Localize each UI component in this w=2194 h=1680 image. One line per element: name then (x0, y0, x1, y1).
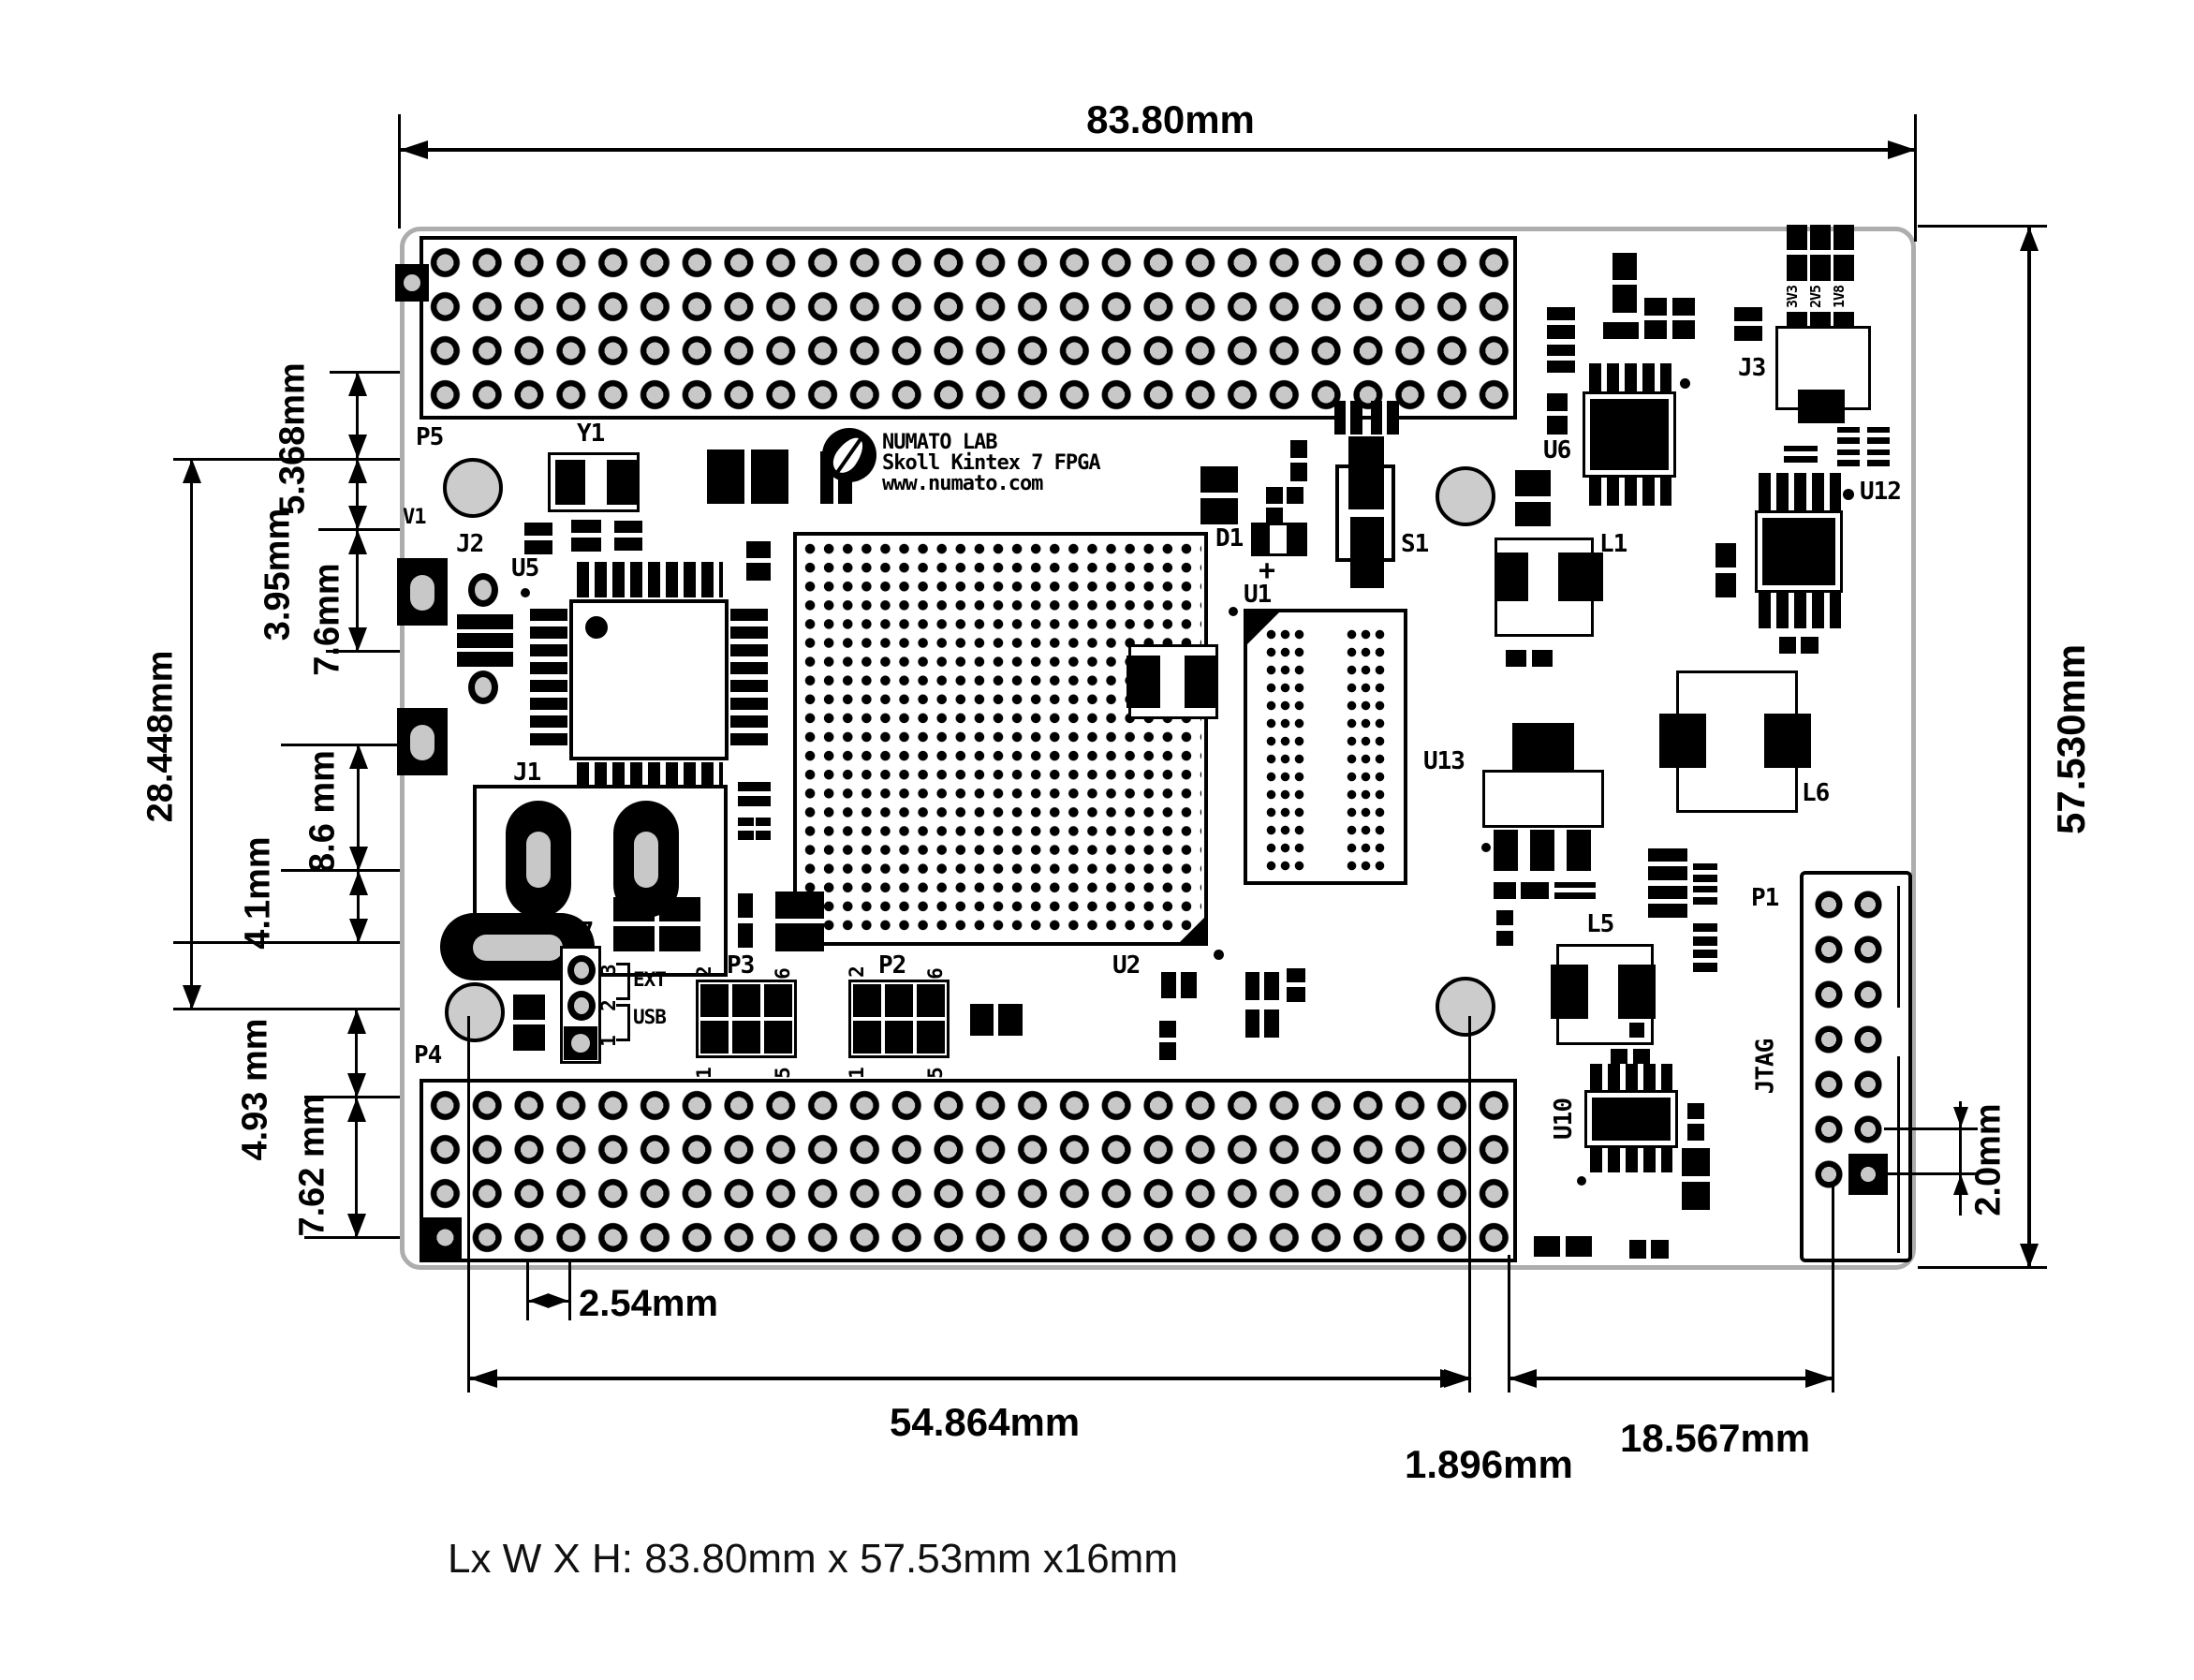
smd-pad (1611, 1049, 1627, 1064)
u12-pins-top (1759, 473, 1841, 512)
arrowhead (349, 847, 368, 871)
y1-pad (555, 460, 585, 505)
label-p3: P3 (727, 951, 754, 980)
arrowhead (548, 1293, 568, 1308)
p7-hole (567, 991, 596, 1021)
smd-pad (1245, 972, 1279, 1000)
witness-line (1884, 1127, 1978, 1130)
u6-pin1-dot (1680, 378, 1690, 389)
witness-line (1468, 1016, 1471, 1393)
p1-inner-line (1897, 1056, 1900, 1253)
arrowhead (2020, 1244, 2039, 1268)
label-j3: J3 (1738, 354, 1765, 382)
j3-rail-pad (1833, 225, 1854, 281)
u5-pins-right (730, 609, 768, 751)
smd-pad (775, 892, 824, 951)
dim-height: 57.530mm (2049, 656, 2094, 834)
u13-leg (1494, 830, 1518, 871)
smd-pad (1371, 401, 1399, 435)
dim-left4: 28.448mm (141, 643, 182, 831)
smd-pad (1290, 440, 1307, 481)
smd-pad (614, 521, 642, 551)
smd-pad (513, 995, 545, 1051)
label-u10: U10 (1550, 1098, 1578, 1140)
u1-holes-right (1345, 626, 1387, 875)
label-d1: D1 (1215, 524, 1243, 553)
dim-left2: 3.95mm (258, 500, 299, 650)
smd-pad (1266, 487, 1283, 504)
smd-pad (738, 818, 754, 840)
smd-pad (1682, 1182, 1710, 1210)
label-ext: EXT (633, 968, 666, 991)
label-l1: L1 (1599, 530, 1627, 558)
l5-pad (1618, 965, 1656, 1019)
p2-pin2: 2 (846, 966, 868, 978)
witness-line (398, 114, 401, 228)
label-p7: P7 (566, 918, 593, 946)
p2-pin5: 5 (924, 1068, 947, 1079)
label-j1: J1 (513, 759, 540, 787)
arrowhead (528, 1293, 549, 1308)
label-u13: U13 (1423, 747, 1465, 775)
u5-pins-top (577, 562, 723, 597)
d1-pad (1287, 523, 1307, 556)
p7-hole (567, 955, 596, 985)
p7-bracket-ext (616, 963, 630, 1000)
arrowhead (348, 435, 367, 459)
header-p4-holes (424, 1083, 1512, 1260)
arrowhead (348, 372, 367, 396)
smd-pad (1837, 449, 1860, 466)
smd-pad (1629, 1240, 1669, 1259)
u10-dot (1577, 1176, 1586, 1186)
smd-pad (707, 449, 744, 504)
label-u12: U12 (1860, 478, 1901, 506)
label-3v3: 3V3 (1784, 286, 1801, 308)
arrowhead (347, 1214, 366, 1238)
smd-pad (571, 520, 601, 552)
s1-actuator (1350, 517, 1384, 588)
mounting-hole (1436, 977, 1495, 1037)
smd-pad (1547, 393, 1568, 435)
witness-line (526, 1262, 529, 1320)
u5-pins-left (530, 609, 567, 751)
arrowhead (400, 140, 428, 159)
label-p1: P1 (1751, 884, 1778, 912)
dim-line-18 (1509, 1377, 1833, 1380)
arrowhead (348, 506, 367, 530)
smd-pad (1515, 470, 1551, 496)
smd-pad (1693, 923, 1717, 946)
smd-pad (1648, 886, 1687, 918)
witness-line (1832, 1182, 1834, 1393)
arrowhead (183, 985, 201, 1009)
dim-line-height (2027, 227, 2031, 1268)
smd-pad (1200, 498, 1238, 524)
caption-size-summary: Lx W X H: 83.80mm x 57.53mm x16mm (448, 1536, 1178, 1583)
dim-left1: 5.368mm (273, 355, 314, 523)
u12-pins-bottom (1759, 593, 1841, 628)
u10-pins-bottom (1590, 1148, 1672, 1172)
smd-pad (1693, 886, 1717, 905)
dim-left6: 4.1mm (239, 828, 279, 959)
smd-pad (1715, 543, 1736, 567)
arrowhead (183, 459, 201, 483)
u5-pin1-dot (585, 616, 608, 639)
mounting-hole (1436, 466, 1495, 526)
logo-line1: NUMATO LAB (882, 433, 996, 453)
p3-pin6: 6 (772, 968, 794, 980)
p3-pin5: 5 (772, 1068, 794, 1079)
u10-pins-top (1590, 1064, 1672, 1090)
label-u6: U6 (1543, 436, 1570, 464)
smd-pad (738, 893, 753, 918)
p3-pin1: 1 (693, 1068, 715, 1079)
y1-pad (607, 460, 637, 505)
smd-pad (1629, 1023, 1644, 1038)
label-u5: U5 (511, 554, 538, 582)
mounting-hole (443, 458, 503, 518)
d1-pad (1251, 523, 1270, 556)
arrowhead (1805, 1369, 1833, 1388)
p1-inner-line (1897, 886, 1900, 1008)
p3-pin2: 2 (693, 966, 715, 978)
label-p4: P4 (414, 1041, 441, 1069)
smd-pad (1648, 848, 1687, 880)
witness-line (1914, 114, 1917, 242)
label-u2: U2 (1112, 951, 1140, 980)
u1-pin1-dot (1229, 607, 1238, 616)
dim-left7: 4.93 mm (236, 1006, 276, 1174)
header-p5-holes (424, 241, 1512, 417)
p7-pin1-hole (571, 1034, 590, 1053)
smd-pad (1633, 1049, 1650, 1064)
smd-pad (613, 897, 655, 951)
smd-pad (1521, 882, 1549, 899)
smd-pad (751, 449, 788, 504)
arrowhead (349, 744, 368, 769)
pcb-dimension-drawing: P5 P4 U2 U1 D1 + S1 V1 J2 Y1 (0, 0, 2194, 1680)
smd-pad (1534, 1236, 1560, 1257)
smd-pad (1245, 1009, 1279, 1038)
arrowhead (1444, 1369, 1472, 1388)
smd-pad (1687, 1103, 1704, 1141)
dim-line (190, 459, 193, 1009)
u1-holes-left (1264, 626, 1306, 875)
via-ring (468, 573, 498, 607)
numato-leaf-logo (822, 428, 876, 482)
smd-pad (1867, 449, 1890, 466)
arrowhead (1953, 1174, 1968, 1195)
j1-big-pad-slot (526, 832, 551, 888)
smd-pad (1566, 1236, 1592, 1257)
label-v1: V1 (403, 506, 426, 529)
smd-pad (1867, 427, 1890, 444)
smd-pad (1266, 508, 1283, 524)
u13-dot (1481, 843, 1491, 852)
u12-pin1-dot (1843, 489, 1854, 500)
smd-pad (1287, 487, 1303, 504)
p3-gridline (700, 1017, 792, 1021)
dim-right1: 2.0mm (1969, 1095, 2010, 1226)
dim-bottom3: 18.567mm (1620, 1416, 1810, 1461)
arrowhead (348, 459, 367, 483)
smd-pad (659, 897, 700, 951)
j3-select-pad (1798, 390, 1845, 423)
u5-silk-dot (521, 588, 530, 597)
u6-die (1590, 399, 1669, 470)
label-y1: Y1 (577, 420, 604, 448)
arrowhead (348, 627, 367, 652)
j3-rail-pad (1810, 225, 1831, 281)
p2-pin6: 6 (924, 968, 947, 980)
u6-pins-top (1589, 363, 1671, 393)
smd-pad (1161, 972, 1197, 998)
u10-die (1592, 1098, 1671, 1141)
arrowhead (347, 1098, 366, 1122)
fpga-pads (801, 539, 1201, 938)
l6-pad (1659, 714, 1706, 768)
dim-left3: 7.6mm (308, 554, 348, 685)
logo-line2: Skoll Kintex 7 FPGA (882, 453, 1100, 474)
arrowhead (347, 1073, 366, 1098)
p1-holes (1809, 882, 1888, 1197)
smd-pad (738, 782, 771, 806)
smd-pad (1715, 573, 1736, 597)
j2-pad-hole (410, 725, 434, 760)
smd-pad (1547, 307, 1575, 339)
label-jtag: JTAG (1751, 1039, 1779, 1095)
dim-bottom1: 54.864mm (890, 1400, 1080, 1445)
smd-pad (1496, 910, 1513, 925)
label-1v8: 1V8 (1831, 286, 1848, 308)
label-l5: L5 (1586, 910, 1613, 938)
smd-pad (1547, 345, 1575, 373)
smd-pad (1200, 466, 1238, 493)
arrowhead (2020, 227, 2039, 251)
p2-gridline (853, 1017, 945, 1021)
smd-pad (524, 523, 552, 554)
u13-tab (1512, 723, 1574, 770)
l1-pad (1496, 553, 1528, 601)
dim-width: 83.80mm (983, 97, 1358, 142)
edge-pad-hole (404, 274, 420, 291)
fpga-pin1-dot (1214, 950, 1224, 960)
label-p2: P2 (878, 951, 906, 980)
smd-pad (1682, 1148, 1710, 1176)
j3-rail-pad (1787, 225, 1807, 281)
smd-pad (1532, 650, 1553, 667)
smd-pad (1644, 298, 1667, 339)
logo-line3: www.numato.com (882, 474, 1042, 494)
smd-pad (1693, 863, 1717, 882)
smd-pad (970, 1004, 1023, 1036)
smd-pad (457, 652, 513, 667)
smd-pad (1734, 307, 1762, 341)
u12-die (1762, 518, 1835, 585)
witness-line (568, 1262, 571, 1320)
arrowhead (348, 530, 367, 554)
arrowhead (349, 871, 368, 895)
smd-pad (1693, 950, 1717, 972)
smd-pad (1612, 253, 1637, 313)
arrowhead (469, 1369, 497, 1388)
u13-leg (1530, 830, 1554, 871)
label-d1-plus: + (1259, 554, 1274, 587)
l1-pad (1558, 553, 1603, 601)
smd-pad (1185, 656, 1218, 708)
via-ring (468, 671, 498, 704)
smd-pad (1334, 401, 1362, 435)
label-l6: L6 (1802, 779, 1829, 807)
dim-left5: 8.6 mm (303, 737, 344, 887)
smd-pad (457, 633, 513, 648)
dim-left8: 7.62 mm (293, 1082, 333, 1250)
label-p5: P5 (416, 423, 443, 451)
l5-pad (1551, 965, 1588, 1019)
l6-pad (1764, 714, 1811, 768)
smd-pad (738, 923, 753, 948)
smd-pad (1837, 427, 1860, 444)
j1-shield-slot (473, 935, 563, 961)
smd-pad (1554, 882, 1596, 899)
s1-actuator (1348, 436, 1384, 509)
witness-line (467, 1016, 470, 1393)
arrowhead (1888, 140, 1916, 159)
smd-pad (1287, 968, 1305, 1002)
u13-leg (1567, 830, 1591, 871)
label-2v5: 2V5 (1807, 286, 1824, 308)
fpga-corner-notch (1178, 916, 1206, 944)
smd-pad (1159, 1021, 1176, 1060)
smd-pad (1779, 637, 1819, 654)
dim-pitch: 2.54mm (579, 1283, 718, 1325)
smd-pad (1126, 656, 1160, 708)
label-usb: USB (633, 1006, 666, 1028)
p7-bracket-usb (616, 1004, 630, 1041)
arrowhead (1953, 1107, 1968, 1127)
smd-pad (1515, 502, 1551, 526)
smd-pad (1494, 882, 1516, 899)
smd-pad (756, 818, 771, 840)
u6-pins-bottom (1589, 476, 1671, 506)
smd-pad (1784, 446, 1818, 463)
j1-big-pad-slot (634, 832, 658, 888)
j2-pad-hole (410, 575, 434, 611)
smd-pad (1672, 298, 1695, 339)
arrowhead (347, 1009, 366, 1034)
dim-line-width (400, 148, 1916, 152)
smd-pad (1496, 931, 1513, 946)
smd-pad (457, 614, 513, 629)
u13-body (1482, 770, 1604, 828)
smd-pad (1506, 650, 1526, 667)
label-s1: S1 (1401, 530, 1428, 558)
dim-line-54 (469, 1377, 1469, 1380)
smd-pad (746, 541, 771, 581)
p2-pin1: 1 (846, 1068, 868, 1079)
mounting-hole (445, 982, 505, 1042)
dim-bottom2: 1.896mm (1405, 1442, 1573, 1487)
arrowhead (349, 919, 368, 943)
smd-pad (1603, 322, 1639, 339)
label-j2: J2 (456, 530, 483, 558)
